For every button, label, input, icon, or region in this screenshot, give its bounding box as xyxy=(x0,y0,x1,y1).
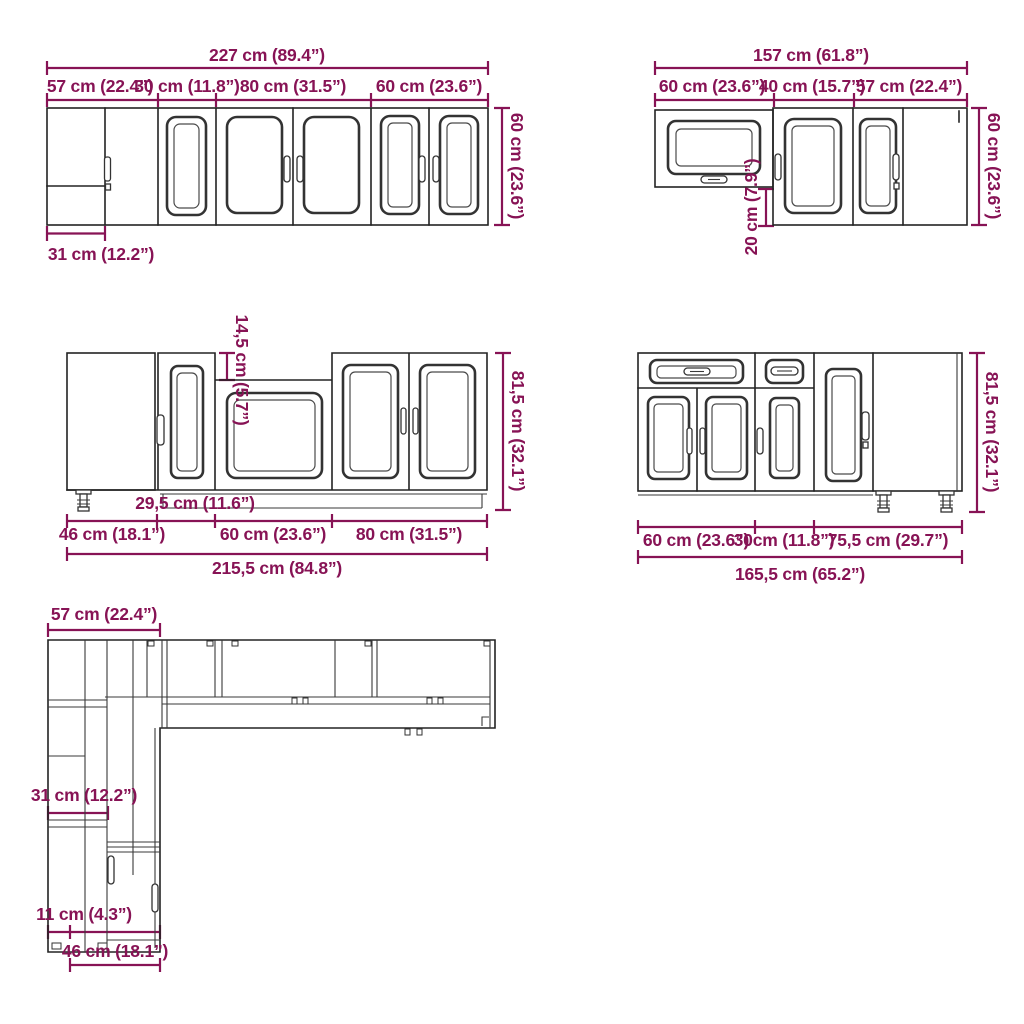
base-right-30cm-drawer xyxy=(766,360,803,383)
label-section-a-80: 80 cm (31.5”) xyxy=(240,76,346,96)
diagram-svg: 227 cm (89.4”) 57 cm (22.4”) 30 cm (11.8… xyxy=(0,0,1024,1024)
floor-plan-top-view: 57 cm (22.4”) 31 cm (12.2”) 11 cm (4.3”)… xyxy=(31,604,495,972)
wall-cabinets-left-elevation: 227 cm (89.4”) 57 cm (22.4”) 30 cm (11.8… xyxy=(47,45,527,264)
base-left-carcass xyxy=(67,353,487,508)
label-corner-side-a: 31 cm (12.2”) xyxy=(48,244,154,264)
wall-cabinets-right-elevation: 157 cm (61.8”) 60 cm (23.6”) 40 cm (15.7… xyxy=(655,45,1004,255)
label-height-b: 60 cm (23.6”) xyxy=(984,113,1004,219)
label-gap-b: 20 cm (7.9”) xyxy=(741,159,761,256)
label-plan-bottom-width: 46 cm (18.1”) xyxy=(62,941,168,961)
label-total-width-b: 157 cm (61.8”) xyxy=(753,45,869,65)
wall-right-corner-glass-door xyxy=(860,119,899,213)
label-section-d-30: 30cm (11.8”) xyxy=(734,530,835,550)
base-cabinets-left-elevation: 14,5 cm (5.7”) 81,5 cm (32.1”) 29,5 cm (… xyxy=(59,314,528,578)
label-section-b-40: 40 cm (15.7”) xyxy=(759,76,865,96)
label-section-a-30: 30 cm (11.8”) xyxy=(134,76,239,96)
label-section-c-60: 60 cm (23.6”) xyxy=(220,524,326,544)
wall-left-corner-door-handle xyxy=(105,157,111,190)
dim-lines-total-d xyxy=(638,550,962,564)
label-recess-c: 14,5 cm (5.7”) xyxy=(232,314,252,425)
label-height-a: 60 cm (23.6”) xyxy=(507,113,527,219)
base-right-corner-glass-door xyxy=(826,369,869,481)
label-section-a-60: 60 cm (23.6”) xyxy=(376,76,482,96)
dim-lines-corner-side-a xyxy=(47,226,105,241)
kitchen-cabinet-dimensions-diagram: 227 cm (89.4”) 57 cm (22.4”) 30 cm (11.8… xyxy=(0,0,1024,1024)
dim-lines-plan-top xyxy=(48,623,160,637)
base-cabinets-right-elevation: 81,5 cm (32.1”) 60 cm (23.6”) 30cm (11.8… xyxy=(638,353,1002,584)
dim-lines-plan-offset xyxy=(48,925,160,939)
label-narrow-unit-c: 29,5 cm (11.6”) xyxy=(135,493,255,513)
label-plan-side-depth: 31 cm (12.2”) xyxy=(31,785,137,805)
label-section-b-60: 60 cm (23.6”) xyxy=(659,76,765,96)
base-right-60cm-drawer xyxy=(650,360,743,383)
label-section-c-80: 80 cm (31.5”) xyxy=(356,524,462,544)
label-height-d: 81,5 cm (32.1”) xyxy=(982,372,1002,493)
label-total-width-a: 227 cm (89.4”) xyxy=(209,45,325,65)
wall-left-30cm-glass-door xyxy=(167,117,206,215)
dim-lines-plan-side xyxy=(48,806,108,820)
label-height-c: 81,5 cm (32.1”) xyxy=(508,371,528,492)
label-total-c: 215,5 cm (84.8”) xyxy=(212,558,342,578)
label-section-b-57: 57 cm (22.4”) xyxy=(856,76,962,96)
label-plan-top-width: 57 cm (22.4”) xyxy=(51,604,157,624)
label-plan-corner-offset: 11 cm (4.3”) xyxy=(36,904,132,924)
label-total-d: 165,5 cm (65.2”) xyxy=(735,564,865,584)
base-left-corner-foot xyxy=(76,490,91,511)
base-right-30cm-glass-door xyxy=(757,398,799,478)
label-section-d-75: 75,5 cm (29.7”) xyxy=(828,530,949,550)
wall-right-40cm-glass-door xyxy=(775,119,841,213)
label-section-c-46: 46 cm (18.1”) xyxy=(59,524,165,544)
base-left-29cm-glass-door xyxy=(157,366,203,478)
base-right-feet xyxy=(876,491,954,512)
